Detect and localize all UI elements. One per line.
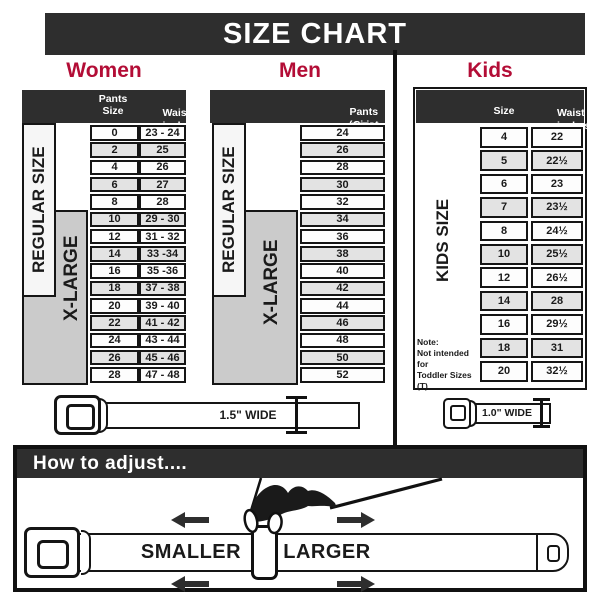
- kids-waist-cell: 22½: [531, 150, 583, 171]
- men-pants-size-header: Pants Size(waist inches): [300, 106, 385, 119]
- women-pants-size-header: Pants Size: [88, 93, 138, 118]
- women-regular-box: REGULAR SIZE: [22, 123, 56, 297]
- women-size-cell: 14: [90, 246, 139, 262]
- women-heading: Women: [22, 57, 186, 85]
- women-xlarge-label: X-LARGE: [56, 212, 88, 344]
- arrow-right-icon: [337, 576, 375, 592]
- kids-width-marker: [540, 399, 543, 428]
- women-size-cell: 10: [90, 212, 139, 228]
- women-table-header: Pants Size Waistinches: [22, 90, 186, 123]
- section-divider: [393, 50, 397, 445]
- men-regular-label: REGULAR SIZE: [214, 125, 244, 295]
- women-waist-cell: 23 - 24: [139, 125, 186, 141]
- adjust-heading: How to adjust....: [17, 453, 187, 474]
- women-size-cell: 28: [90, 367, 139, 383]
- men-size-cell: 52: [300, 367, 385, 383]
- kids-waist-cell: 23½: [531, 197, 583, 218]
- adult-width-marker-cap-top: [286, 396, 307, 399]
- adult-belt-width-label: 1.5" WIDE: [212, 408, 284, 422]
- men-size-cell: 32: [300, 194, 385, 210]
- kids-size-header: Size: [480, 105, 528, 118]
- men-size-cell: 44: [300, 298, 385, 314]
- kids-size-label-wrap: KIDS SIZE: [424, 155, 462, 325]
- adult-buckle-hole: [66, 404, 95, 430]
- arrow-left-icon: [171, 512, 209, 528]
- kids-waist-cell: 29½: [531, 314, 583, 335]
- women-size-cell: 24: [90, 333, 139, 349]
- men-xlarge-label-wrap: X-LARGE: [248, 212, 296, 352]
- kids-size-cell: 5: [480, 150, 528, 171]
- arrow-left-icon: [171, 576, 209, 592]
- women-size-cell: 20: [90, 298, 139, 314]
- kids-size-cell: 4: [480, 127, 528, 148]
- kids-belt-width-label: 1.0" WIDE: [479, 407, 535, 419]
- page-title: SIZE CHART: [223, 18, 407, 51]
- adult-belt-buckle: [54, 395, 101, 435]
- kids-belt-jaw: [470, 400, 477, 427]
- men-size-cell: 38: [300, 246, 385, 262]
- men-size-cell: 46: [300, 315, 385, 331]
- kids-waist-cell: 31: [531, 338, 583, 359]
- kids-size-cell: 7: [480, 197, 528, 218]
- men-size-cell: 24: [300, 125, 385, 141]
- women-waist-cell: 39 - 40: [139, 298, 186, 314]
- women-size-cell: 22: [90, 315, 139, 331]
- women-waist-cell: 29 - 30: [139, 212, 186, 228]
- kids-size-cell: 14: [480, 291, 528, 312]
- women-waist-cell: 31 - 32: [139, 229, 186, 245]
- smaller-label: SMALLER: [132, 541, 250, 564]
- kids-note: Note: Not intended for Toddler Sizes (T): [417, 337, 481, 392]
- kids-size-cell: 20: [480, 361, 528, 382]
- women-size-cell: 4: [90, 160, 139, 176]
- kids-waist-cell: 25½: [531, 244, 583, 265]
- men-size-cell: 48: [300, 333, 385, 349]
- men-size-cell: 40: [300, 263, 385, 279]
- women-waist-cell: 47 - 48: [139, 367, 186, 383]
- women-waist-header: Waistinches: [139, 107, 186, 120]
- women-size-cell: 26: [90, 350, 139, 366]
- women-xlarge-label-wrap: X-LARGE: [56, 212, 88, 344]
- kids-table-header: Size Waistinches: [416, 90, 584, 123]
- men-size-cell: 42: [300, 281, 385, 297]
- women-waist-cell: 25: [139, 142, 186, 158]
- kids-size-cell: 12: [480, 267, 528, 288]
- women-waist-cell: 37 - 38: [139, 281, 186, 297]
- kids-heading: Kids: [403, 57, 577, 85]
- men-heading: Men: [210, 57, 390, 85]
- men-size-cell: 26: [300, 142, 385, 158]
- men-size-cell: 36: [300, 229, 385, 245]
- adult-width-marker-cap-bottom: [286, 431, 307, 434]
- women-size-cell: 8: [90, 194, 139, 210]
- kids-waist-cell: 28: [531, 291, 583, 312]
- size-chart-page: SIZE CHART Women Men Kids Pants Size Wai…: [0, 0, 600, 600]
- adult-width-marker: [295, 397, 298, 434]
- women-size-cell: 0: [90, 125, 139, 141]
- adjust-buckle-hole: [37, 540, 69, 569]
- larger-label: LARGER: [268, 541, 386, 564]
- kids-buckle-hole: [450, 405, 466, 421]
- men-size-cell: 50: [300, 350, 385, 366]
- kids-size-label: KIDS SIZE: [424, 155, 462, 325]
- women-regular-label: REGULAR SIZE: [24, 125, 54, 295]
- kids-size-cell: 18: [480, 338, 528, 359]
- hand-icon: [230, 468, 450, 540]
- adjust-belt-buckle: [24, 527, 80, 578]
- men-size-cell: 30: [300, 177, 385, 193]
- women-size-cell: 12: [90, 229, 139, 245]
- men-xlarge-label: X-LARGE: [248, 212, 296, 352]
- kids-size-cell: 16: [480, 314, 528, 335]
- adjust-belt-jaw: [81, 530, 91, 575]
- adjust-belt-tip: [536, 533, 569, 572]
- kids-waist-header: Waistinches: [531, 107, 583, 120]
- women-waist-cell: 43 - 44: [139, 333, 186, 349]
- women-waist-cell: 45 - 46: [139, 350, 186, 366]
- women-size-cell: 16: [90, 263, 139, 279]
- kids-belt-buckle: [443, 398, 471, 429]
- title-bar: SIZE CHART: [45, 13, 585, 55]
- women-waist-cell: 28: [139, 194, 186, 210]
- women-waist-cell: 27: [139, 177, 186, 193]
- kids-waist-cell: 26½: [531, 267, 583, 288]
- women-size-cell: 2: [90, 142, 139, 158]
- kids-waist-cell: 23: [531, 174, 583, 195]
- men-regular-box: REGULAR SIZE: [212, 123, 246, 297]
- kids-width-marker-cap-top: [533, 398, 550, 401]
- kids-waist-cell: 24½: [531, 221, 583, 242]
- kids-size-cell: 8: [480, 221, 528, 242]
- kids-size-cell: 10: [480, 244, 528, 265]
- men-table-header: Pants Size(waist inches): [210, 90, 385, 123]
- women-waist-cell: 41 - 42: [139, 315, 186, 331]
- women-waist-cell: 33 -34: [139, 246, 186, 262]
- women-size-cell: 18: [90, 281, 139, 297]
- men-size-cell: 28: [300, 160, 385, 176]
- women-size-cell: 6: [90, 177, 139, 193]
- women-waist-cell: 35 -36: [139, 263, 186, 279]
- kids-width-marker-cap-bottom: [533, 425, 550, 428]
- women-waist-cell: 26: [139, 160, 186, 176]
- adjust-belt-tip-hole: [547, 545, 560, 562]
- men-size-cell: 34: [300, 212, 385, 228]
- kids-size-cell: 6: [480, 174, 528, 195]
- kids-waist-cell: 32½: [531, 361, 583, 382]
- kids-waist-cell: 22: [531, 127, 583, 148]
